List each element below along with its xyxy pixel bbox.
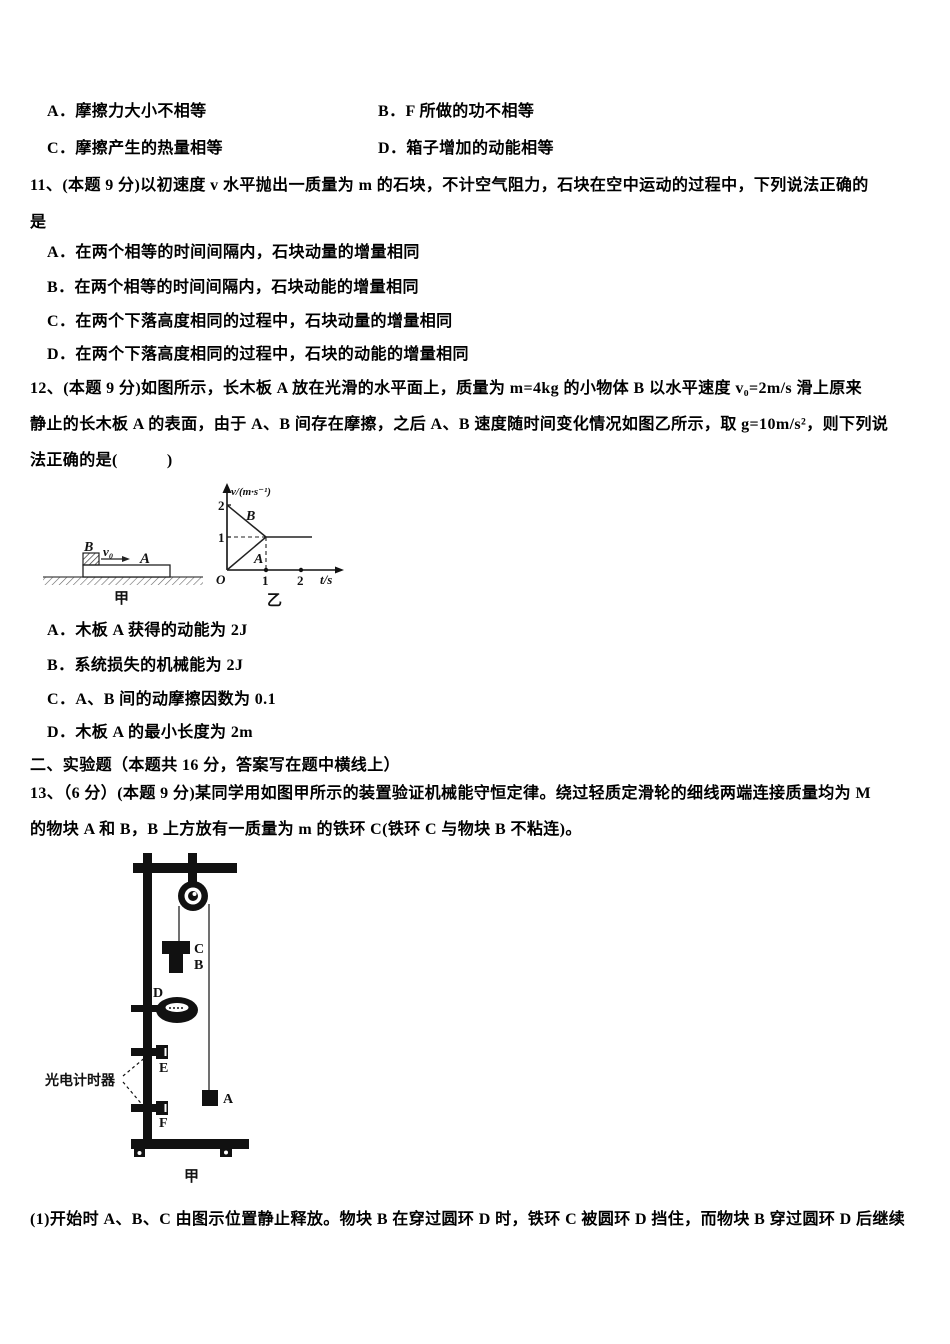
q12-stem-line3: 法正确的是( ) <box>30 451 173 471</box>
axis-dot-t1 <box>264 568 268 572</box>
label-C: C <box>194 942 204 957</box>
ring-D <box>156 997 198 1023</box>
foot-right-hole <box>224 1151 228 1155</box>
q13-stem-line2: 的物块 A 和 B，B 上方放有一质量为 m 的铁环 C(铁环 C 与物块 B … <box>30 820 582 840</box>
q12-option-b: B．系统损失的机械能为 2J <box>47 656 243 676</box>
q12-option-c: C．A、B 间的动摩擦因数为 0.1 <box>47 690 276 710</box>
prev-option-d: D．箱子增加的动能相等 <box>378 139 554 159</box>
xtick-2-label: 2 <box>297 573 304 588</box>
pulley <box>178 881 208 911</box>
fig-apparatus-caption: 甲 <box>184 1168 199 1185</box>
prev-option-b: B．F 所做的功不相等 <box>378 102 534 122</box>
q12-stem-line1: 12、(本题 9 分)如图所示，长木板 A 放在光滑的水平面上，质量为 m=4k… <box>30 379 862 399</box>
block-b-label: B <box>83 540 93 555</box>
label-A: A <box>223 1092 234 1107</box>
graph-xlabel: t/s <box>320 572 332 587</box>
fig-jia-caption: 甲 <box>114 590 129 607</box>
q12-stem-line2: 静止的长木板 A 的表面，由于 A、B 间存在摩擦，之后 A、B 速度随时间变化… <box>30 415 888 435</box>
figure-vt-graph: v/(m·s⁻¹) 2 1 O 1 2 t/s B A 乙 <box>215 483 350 608</box>
ytick-2-label: 2 <box>218 498 225 513</box>
ring-C-shape <box>162 941 190 954</box>
block-A-shape <box>202 1090 218 1106</box>
axis-dot-t2 <box>299 568 303 572</box>
base <box>131 1139 249 1149</box>
board-a-label: A <box>139 551 150 567</box>
foot-left-hole <box>138 1151 142 1155</box>
q13-stem-line1: 13、（6 分）(本题 9 分)某同学用如图甲所示的装置验证机械能守恒定律。绕过… <box>30 784 871 804</box>
prev-option-c: C．摩擦产生的热量相等 <box>47 139 223 159</box>
photogate-timer-label: 光电计时器 <box>44 1072 116 1089</box>
label-E: E <box>159 1061 168 1076</box>
prev-option-a: A．摩擦力大小不相等 <box>47 102 207 122</box>
stand-pole <box>143 853 152 1143</box>
photogate-F-slot <box>165 1104 167 1112</box>
crossbar <box>133 863 237 873</box>
photogate-E-slot <box>165 1048 167 1056</box>
exam-page: A．摩擦力大小不相等 B．F 所做的功不相等 C．摩擦产生的热量相等 D．箱子增… <box>0 0 950 1344</box>
velocity-arrowhead <box>122 556 130 562</box>
q11-option-c: C．在两个下落高度相同的过程中，石块动量的增量相同 <box>47 312 453 332</box>
q13-part1-text: (1)开始时 A、B、C 由图示位置静止释放。物块 B 在穿过圆环 D 时，铁环… <box>30 1210 905 1230</box>
figure-block-on-board: B v₀ A 甲 <box>40 540 210 610</box>
ytick-1-label: 1 <box>218 530 225 545</box>
graph-ylabel: v/(m·s⁻¹) <box>231 486 271 498</box>
section2-title: 二、实验题（本题共 16 分，答案写在题中横线上） <box>30 756 400 776</box>
q11-option-d: D．在两个下落高度相同的过程中，石块的动能的增量相同 <box>47 345 469 365</box>
q11-option-b: B．在两个相等的时间间隔内，石块动能的增量相同 <box>47 278 419 298</box>
block-B-with-ring-C <box>162 941 190 973</box>
xtick-1-label: 1 <box>262 573 269 588</box>
q11-stem-line2: 是 <box>30 213 46 233</box>
velocity-label: v₀ <box>103 544 113 559</box>
block-B-shape <box>169 954 183 973</box>
figure-apparatus: C B D E F 光电计时器 A 甲 <box>35 850 265 1190</box>
curve-b-label: B <box>245 509 255 524</box>
origin-label: O <box>216 572 226 587</box>
label-F: F <box>159 1116 168 1131</box>
photogate-E-clamp <box>131 1048 158 1056</box>
q12-option-a: A．木板 A 获得的动能为 2J <box>47 621 248 641</box>
label-D: D <box>153 986 163 1001</box>
board-A <box>83 565 170 577</box>
q11-option-a: A．在两个相等的时间间隔内，石块动量的增量相同 <box>47 243 420 263</box>
ground-hatch <box>43 577 203 585</box>
q11-stem-line1: 11、(本题 9 分)以初速度 v 水平抛出一质量为 m 的石块，不计空气阻力，… <box>30 176 869 196</box>
fig-yi-caption: 乙 <box>267 593 282 608</box>
label-B: B <box>194 958 203 973</box>
curve-a-label: A <box>253 552 263 567</box>
photogate-F-clamp <box>131 1104 158 1112</box>
q12-option-d: D．木板 A 的最小长度为 2m <box>47 723 253 743</box>
x-axis-arrow <box>335 567 344 574</box>
